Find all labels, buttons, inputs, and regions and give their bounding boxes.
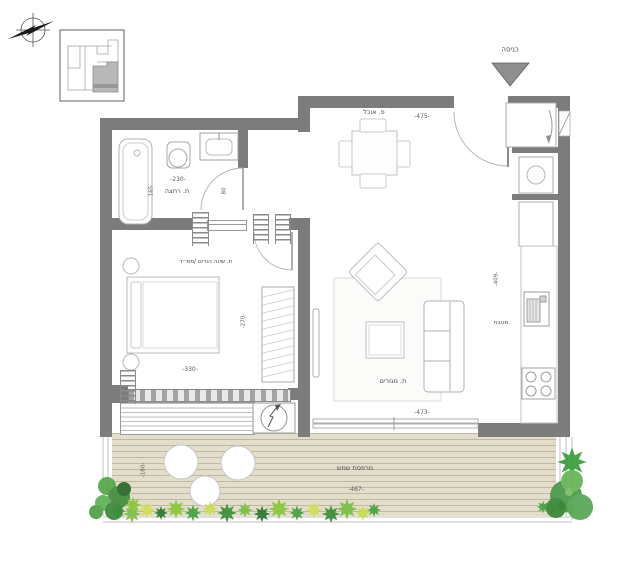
dim-balcony-depth: -180- [141,463,147,477]
vent-symbol [275,214,291,244]
wardrobe [262,287,294,382]
bedroom-window [128,389,291,402]
stove [522,368,555,399]
wall-niche [559,111,570,136]
room-label-living: ת. מגורים [380,378,407,385]
room-label-bathroom: ת. רחצה [165,188,189,195]
dim-bathroom-depth: 165 [149,186,155,197]
nightstand [123,354,139,370]
vent-symbol [192,212,209,246]
nightstand [123,258,139,274]
sink-vanity [200,133,238,160]
dim-bathroom-door: 80 [222,188,228,195]
dim-bedroom-depth: -270- [241,314,247,328]
bathtub [119,139,152,224]
tv-unit [313,309,319,377]
vent-symbol [253,214,269,244]
dim-bathroom-width: -230- [170,177,186,183]
dim-dining-width: -475- [414,114,430,120]
washing-machine [519,157,553,193]
entrance-arrow-icon [492,63,529,86]
coffee-table [366,322,404,358]
room-label-dining: פ. אוכל [363,109,384,116]
kitchen-cabinet [519,202,553,246]
sofa [424,301,464,392]
vent-symbol [120,370,136,404]
corner-bush-right [546,441,593,520]
north-compass-icon [8,13,54,47]
room-label-balcony: מרפסת שמש [337,465,373,472]
plan-drawing [0,0,640,563]
dim-bedroom-width: -330- [182,367,198,373]
key-plan [60,30,124,101]
bathroom-wall-window [207,220,247,231]
dim-living-depth: -409- [494,272,500,286]
balcony-table [190,476,220,506]
dining-table [352,131,397,175]
dim-living-width: -473- [414,410,430,416]
water-heater [253,403,295,433]
sliding-door [313,417,478,430]
entrance-door [454,112,508,167]
entrance-label: כניסה [501,47,518,54]
room-label-kitchen: מטבח [494,321,509,327]
kitchen-sink [524,292,549,326]
balcony-table [221,446,255,480]
kitchen-tall-cabinet [506,103,556,147]
room-label-bedroom: ת. שינה הורים /ממ״ד [179,260,232,266]
bed [127,277,219,353]
balcony-table [164,445,198,479]
toilet [167,142,190,168]
floor-plan-canvas: כניסה פ. אוכל -475- -230- ת. רחצה 165 80… [0,0,640,563]
dim-balcony-width: -467- [348,487,364,493]
